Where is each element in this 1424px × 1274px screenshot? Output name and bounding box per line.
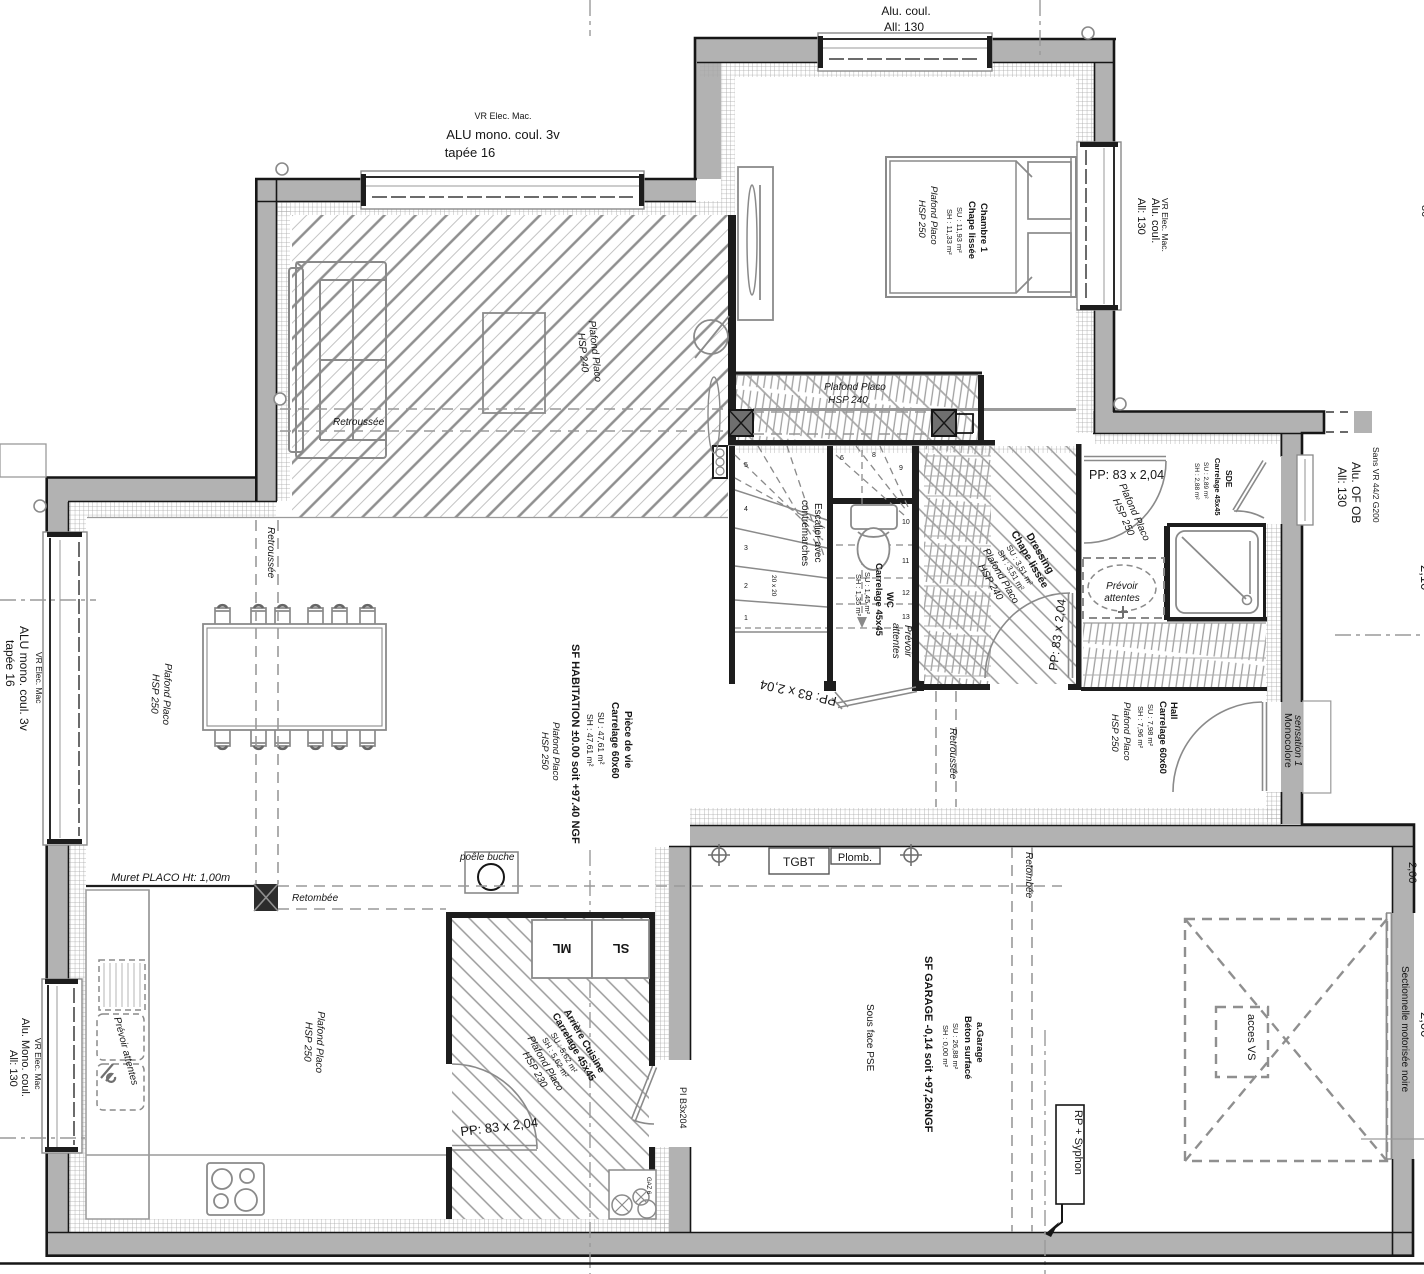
svg-text:Chambre 1: Chambre 1 [978,203,989,253]
svg-text:All: 130: All: 130 [884,20,924,34]
svg-text:Sectionnelle motorisée noire: Sectionnelle motorisée noire [1399,966,1410,1093]
svg-text:2: 2 [744,583,748,590]
svg-text:2,00: 2,00 [1406,862,1418,883]
svg-text:6: 6 [840,455,844,462]
svg-text:Béton surfacé: Béton surfacé [962,1016,973,1079]
svg-text:Retroussée: Retroussée [333,417,385,428]
svg-text:SH : 1,35 m²: SH : 1,35 m² [854,574,863,617]
svg-text:Plafond Placo: Plafond Placo [160,663,173,725]
svg-text:Plafond Placo: Plafond Placo [928,186,939,245]
svg-text:SF HABITATION ±0.00 soit +97.4: SF HABITATION ±0.00 soit +97.40 NGF [569,644,581,844]
svg-text:tapée 16: tapée 16 [445,145,496,160]
svg-text:SH : 7,96 m²: SH : 7,96 m² [1136,706,1145,749]
svg-text:Retroussée: Retroussée [947,728,958,780]
svg-text:attentes: attentes [890,623,901,659]
svg-text:SH : 11,33 m²: SH : 11,33 m² [945,209,954,255]
svg-text:11: 11 [902,558,909,565]
svg-text:12: 12 [902,590,910,597]
svg-text:poêle buche: poêle buche [459,852,515,863]
svg-text:SU : 11,93 m²: SU : 11,93 m² [955,207,964,253]
svg-text:Prévoir attentes: Prévoir attentes [111,1016,140,1087]
svg-text:PI B3x204: PI B3x204 [678,1087,688,1129]
svg-text:All: 130: All: 130 [1335,467,1349,507]
svg-text:Alu. OF OB: Alu. OF OB [1349,462,1363,523]
svg-text:a.Garage: a.Garage [974,1022,985,1063]
svg-text:SL: SL [613,941,630,956]
svg-text:VR Elec. Mac: VR Elec. Mac [33,1038,43,1090]
svg-text:acces VS: acces VS [1245,1014,1257,1060]
svg-text:RP + Syphon: RP + Syphon [1072,1110,1084,1175]
svg-text:20 x 20: 20 x 20 [770,575,777,597]
svg-text:SU : 1,45 m²: SU : 1,45 m² [863,572,872,615]
svg-text:2,10: 2,10 [1418,565,1424,590]
svg-text:Muret PLACO Ht: 1,00m: Muret PLACO Ht: 1,00m [111,872,230,884]
svg-text:5: 5 [744,462,748,469]
svg-text:HSP 250: HSP 250 [301,1022,313,1062]
svg-text:SU : 47,61 m²: SU : 47,61 m² [596,712,606,765]
svg-text:13: 13 [902,614,910,621]
svg-text:SF GARAGE -0,14 soit +97,26NGF: SF GARAGE -0,14 soit +97,26NGF [922,956,934,1133]
svg-text:attentes: attentes [1104,593,1140,604]
svg-text:SU : 26,88 m²: SU : 26,88 m² [951,1023,960,1070]
svg-text:SH : 47,61 m²: SH : 47,61 m² [585,714,595,767]
svg-text:Carrelage 60x60: Carrelage 60x60 [609,702,620,779]
svg-text:Plafond Placo: Plafond Placo [1121,702,1132,761]
svg-text:Alu. coul.: Alu. coul. [1149,198,1161,243]
svg-text:Escalier avec: Escalier avec [812,503,823,562]
svg-text:3: 3 [744,545,748,552]
svg-text:Alu. coul.: Alu. coul. [881,4,930,18]
svg-text:10: 10 [902,519,910,526]
svg-text:HSP 250: HSP 250 [916,200,927,238]
svg-text:Retombée: Retombée [1023,852,1034,899]
svg-text:All: 130: All: 130 [1135,198,1147,235]
svg-text:HSP 240: HSP 240 [828,395,868,406]
svg-text:PP: 83 x 2,04: PP: 83 x 2,04 [1089,468,1164,482]
svg-text:All: 130: All: 130 [7,1050,19,1087]
svg-text:Alu. Mono. coul.: Alu. Mono. coul. [19,1018,31,1097]
svg-text:HSP 250: HSP 250 [1109,714,1120,752]
svg-text:ML: ML [553,941,572,956]
svg-text:Hall: Hall [1168,702,1179,719]
svg-text:Carrelage 60x60: Carrelage 60x60 [1157,701,1168,774]
svg-text:Chape lissée: Chape lissée [966,201,977,259]
svg-text:Sans VR 44/2 G200: Sans VR 44/2 G200 [1371,447,1381,523]
svg-text:1: 1 [744,615,748,622]
svg-text:SU : 2,89 m²: SU : 2,89 m² [1202,462,1209,499]
svg-text:tapée 16: tapée 16 [3,640,17,687]
svg-text:HSP 250: HSP 250 [539,732,550,770]
svg-text:SDE: SDE [1224,470,1234,488]
svg-text:4: 4 [744,506,748,513]
svg-text:sensation 1: sensation 1 [1292,715,1303,766]
svg-text:SH : 0,00 m²: SH : 0,00 m² [941,1025,950,1068]
svg-text:Plafond Placo: Plafond Placo [313,1011,326,1073]
svg-text:Prévoir: Prévoir [1106,581,1138,592]
svg-text:Sous face PSE: Sous face PSE [864,1004,875,1072]
svg-text:Pièce de vie: Pièce de vie [622,711,633,769]
svg-text:Plomb.: Plomb. [838,852,872,864]
svg-text:ALU mono. coul. 3v: ALU mono. coul. 3v [446,127,560,142]
svg-text:Carrelage 45x45: Carrelage 45x45 [1213,458,1222,516]
svg-text:2,00: 2,00 [1418,1012,1424,1037]
svg-text:HSP 250: HSP 250 [148,674,160,714]
svg-text:Plafond Placo: Plafond Placo [824,382,886,393]
svg-text:8: 8 [872,452,876,459]
svg-text:9: 9 [899,465,903,472]
svg-text:Retombée: Retombée [292,893,339,904]
svg-text:Plafond Placo: Plafond Placo [550,722,561,781]
svg-text:80: 80 [1419,205,1424,217]
svg-text:GAZ 6: GAZ 6 [645,1177,651,1195]
svg-text:TGBT: TGBT [783,855,816,869]
svg-text:SH : 2,88 m²: SH : 2,88 m² [1193,463,1200,500]
svg-text:ALU mono. coul. 3v: ALU mono. coul. 3v [17,626,31,731]
svg-text:SU : 7,98 m²: SU : 7,98 m² [1146,704,1155,747]
svg-text:Prévoir: Prévoir [902,625,913,657]
svg-text:VR Elec. Mac: VR Elec. Mac [34,652,44,704]
svg-text:WC: WC [884,592,895,608]
svg-text:Retroussée: Retroussée [265,527,276,579]
svg-text:VR Elec. Mac.: VR Elec. Mac. [474,111,531,121]
svg-text:contremarches: contremarches [799,500,810,566]
svg-text:Carrelage 45x45: Carrelage 45x45 [873,563,884,637]
